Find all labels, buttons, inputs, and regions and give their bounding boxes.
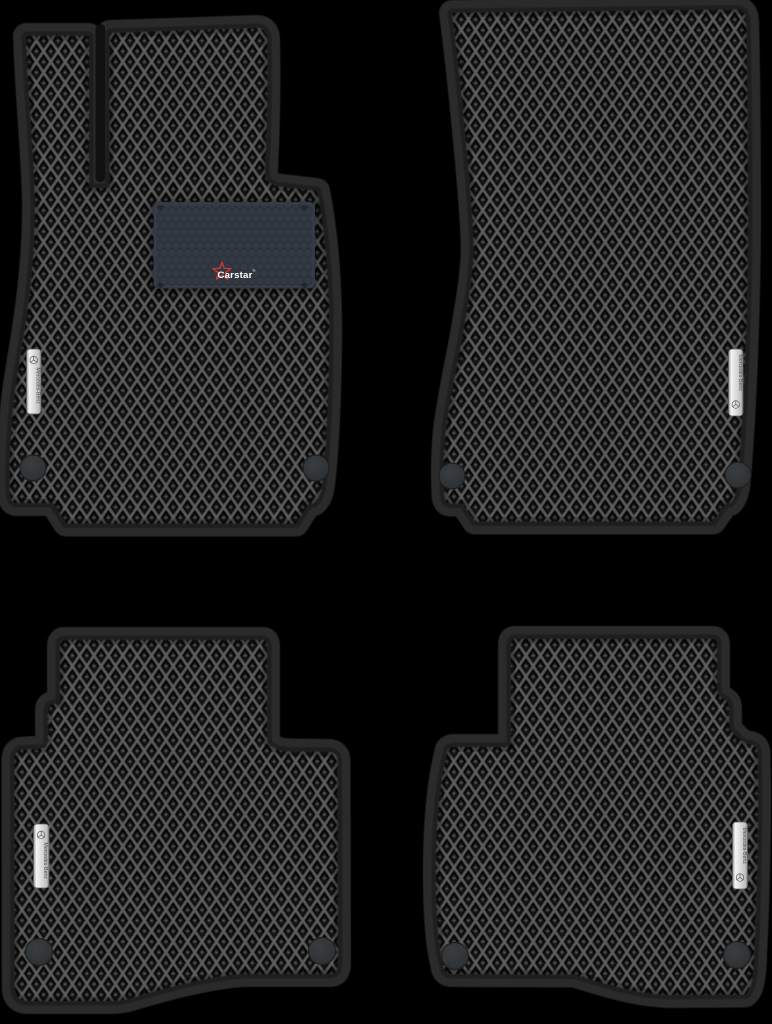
svg-text:Mercedes-Benz: Mercedes-Benz xyxy=(741,828,747,865)
svg-text:Mercedes-Benz: Mercedes-Benz xyxy=(42,843,48,880)
svg-text:Mercedes-Benz: Mercedes-Benz xyxy=(737,355,743,392)
svg-text:Mercedes-Benz: Mercedes-Benz xyxy=(35,368,41,405)
svg-text:Carstar: Carstar xyxy=(218,270,253,281)
svg-text:®: ® xyxy=(253,268,256,273)
